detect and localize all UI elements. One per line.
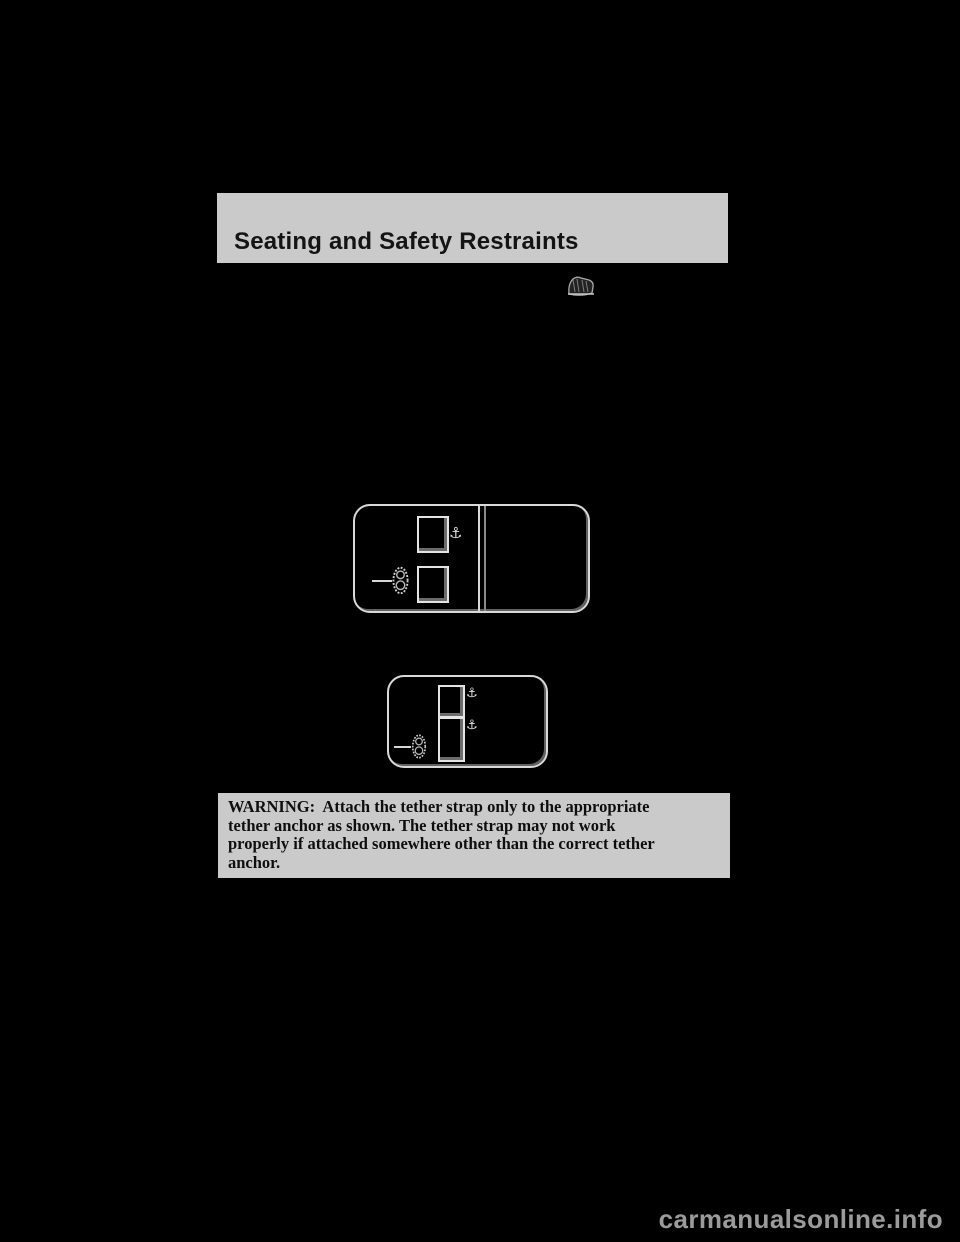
warning-text-line: properly if attached somewhere other tha… (228, 835, 722, 854)
seat-divider-line (478, 506, 480, 611)
tether-anchor-symbol-icon (392, 566, 409, 595)
manual-page: Seating and Safety Restraints ⚓ ⚓ ⚓ (0, 0, 960, 1242)
tether-anchor-symbol-icon (411, 734, 427, 759)
seat-divider-shadow-line (484, 506, 486, 611)
page-title: Seating and Safety Restraints (234, 228, 579, 256)
leader-line (372, 580, 392, 582)
seat-position-square (438, 717, 465, 762)
seat-position-square (417, 566, 449, 603)
anchor-icon: ⚓ (466, 687, 478, 700)
child-seat-icon (565, 274, 597, 298)
seat-position-square (417, 516, 449, 553)
tether-anchor-diagram-lower: ⚓ ⚓ (387, 675, 548, 768)
warning-box: WARNING: Attach the tether strap only to… (218, 793, 730, 878)
anchor-icon: ⚓ (466, 719, 478, 732)
watermark-text: carmanualsonline.info (659, 1204, 943, 1235)
tether-anchor-diagram-upper: ⚓ (353, 504, 590, 613)
seat-position-square (438, 685, 465, 718)
leader-line (394, 746, 411, 748)
chapter-header-band: Seating and Safety Restraints (217, 193, 728, 263)
warning-text-line: anchor. (228, 854, 722, 873)
warning-text-line: WARNING: Attach the tether strap only to… (228, 798, 722, 817)
anchor-icon: ⚓ (449, 526, 462, 541)
warning-text-line: tether anchor as shown. The tether strap… (228, 817, 722, 836)
